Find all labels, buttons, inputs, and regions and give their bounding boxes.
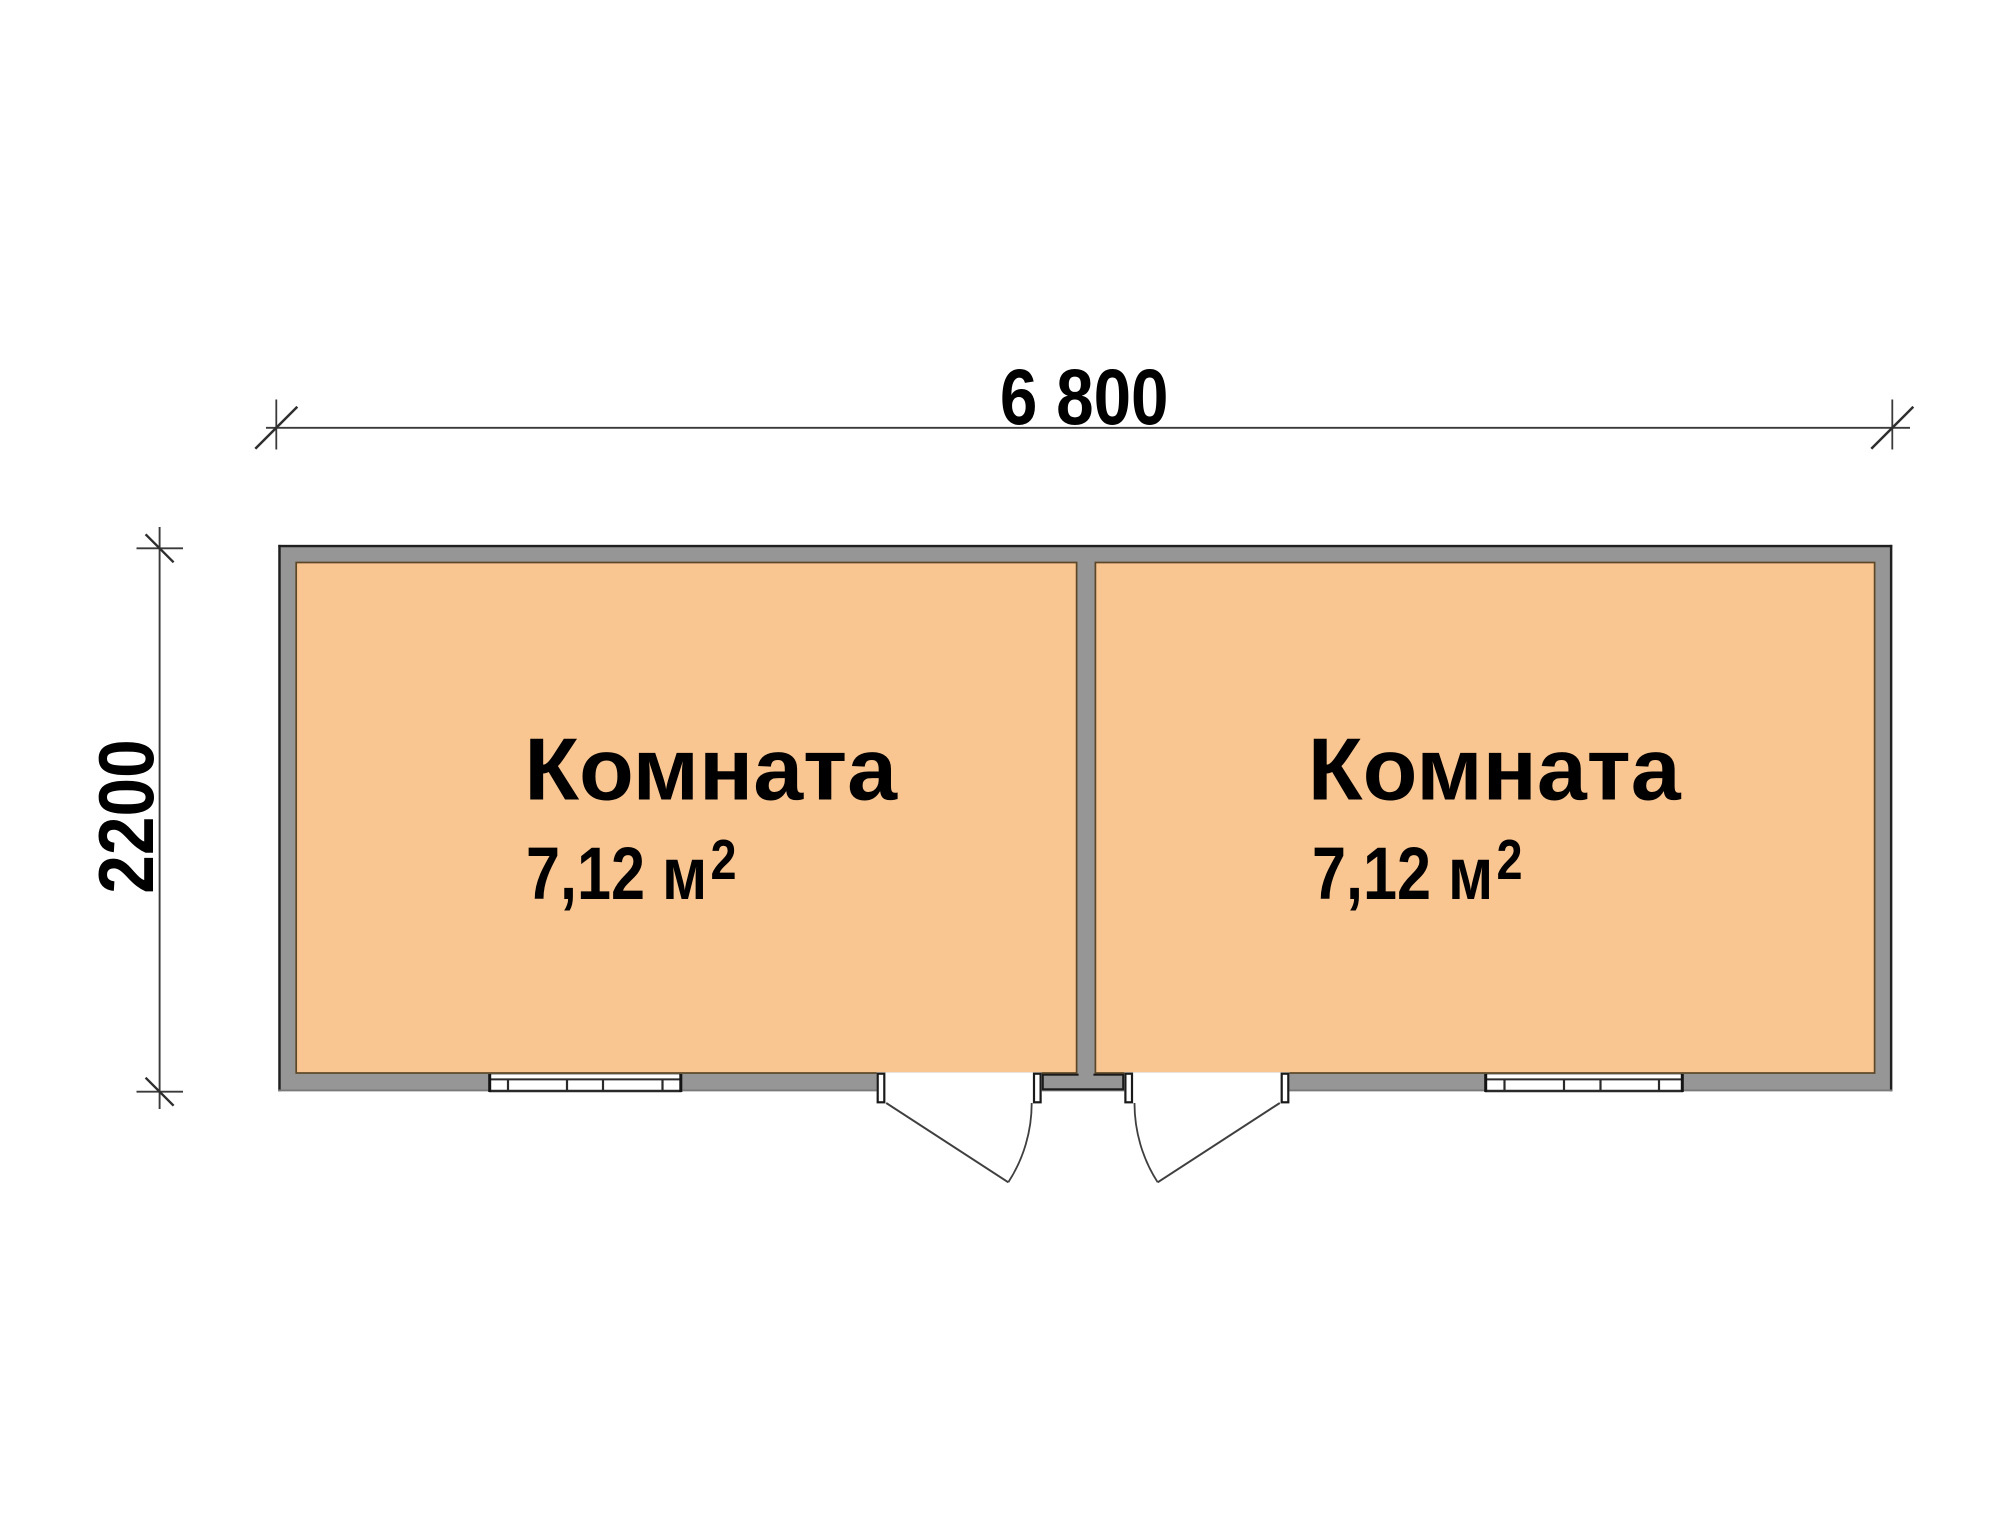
svg-text:Комната: Комната (1308, 720, 1681, 818)
svg-text:2200: 2200 (82, 739, 170, 893)
svg-text:Комната: Комната (524, 720, 897, 818)
svg-text:7,12 м2: 7,12 м2 (526, 829, 737, 916)
svg-text:7,12 м2: 7,12 м2 (1312, 829, 1523, 916)
svg-text:6 800: 6 800 (1000, 353, 1169, 441)
